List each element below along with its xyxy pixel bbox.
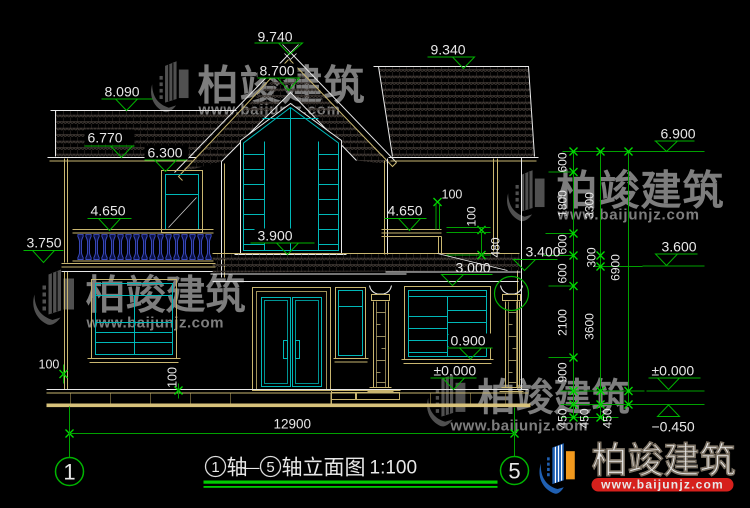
svg-text:300: 300 (585, 247, 599, 267)
svg-text:轴立面图: 轴立面图 (282, 457, 366, 480)
svg-text:100: 100 (166, 367, 180, 388)
svg-text:6.770: 6.770 (88, 130, 123, 146)
svg-text:100: 100 (39, 358, 60, 372)
svg-text:5: 5 (508, 459, 520, 484)
svg-text:6.900: 6.900 (661, 126, 696, 142)
svg-text:8.090: 8.090 (105, 84, 140, 100)
svg-text:3.600: 3.600 (662, 239, 697, 255)
svg-text:1800: 1800 (556, 190, 570, 217)
svg-text:450: 450 (601, 408, 615, 428)
svg-text:100: 100 (442, 188, 463, 202)
svg-text:900: 900 (556, 362, 570, 382)
svg-text:±0.000: ±0.000 (434, 363, 477, 379)
svg-text:3600: 3600 (583, 313, 597, 340)
svg-text:1: 1 (63, 460, 75, 485)
svg-text:柏竣建筑: 柏竣建筑 (592, 440, 736, 481)
svg-text:600: 600 (556, 152, 570, 172)
svg-text:3300: 3300 (583, 192, 597, 219)
svg-text:8.700: 8.700 (260, 63, 295, 79)
svg-text:600: 600 (556, 263, 570, 283)
svg-text:3.900: 3.900 (258, 228, 293, 244)
svg-text:450: 450 (556, 408, 570, 428)
svg-text:−0.450: −0.450 (652, 419, 695, 435)
svg-text:3.000: 3.000 (456, 260, 491, 276)
svg-text:1: 1 (211, 459, 219, 476)
svg-text:9.740: 9.740 (258, 29, 293, 45)
svg-text:4.650: 4.650 (388, 203, 423, 219)
svg-text:3.750: 3.750 (27, 235, 62, 251)
svg-text:450: 450 (578, 408, 592, 428)
svg-text:—: — (244, 460, 260, 477)
svg-text:480: 480 (489, 237, 503, 257)
svg-text:12900: 12900 (274, 417, 312, 432)
svg-text:4.650: 4.650 (91, 203, 126, 219)
svg-text:±0.000: ±0.000 (652, 363, 695, 379)
svg-text:3.400: 3.400 (526, 244, 561, 260)
svg-text:6900: 6900 (609, 254, 623, 281)
svg-text:100: 100 (465, 206, 479, 226)
svg-text:1:100: 1:100 (370, 458, 418, 479)
svg-text:0.900: 0.900 (451, 333, 486, 349)
svg-text:www.baijunjz.com: www.baijunjz.com (600, 478, 724, 492)
svg-text:5: 5 (266, 459, 274, 476)
svg-text:9.340: 9.340 (431, 42, 466, 58)
svg-text:6.300: 6.300 (148, 145, 183, 161)
svg-text:2100: 2100 (556, 309, 570, 336)
